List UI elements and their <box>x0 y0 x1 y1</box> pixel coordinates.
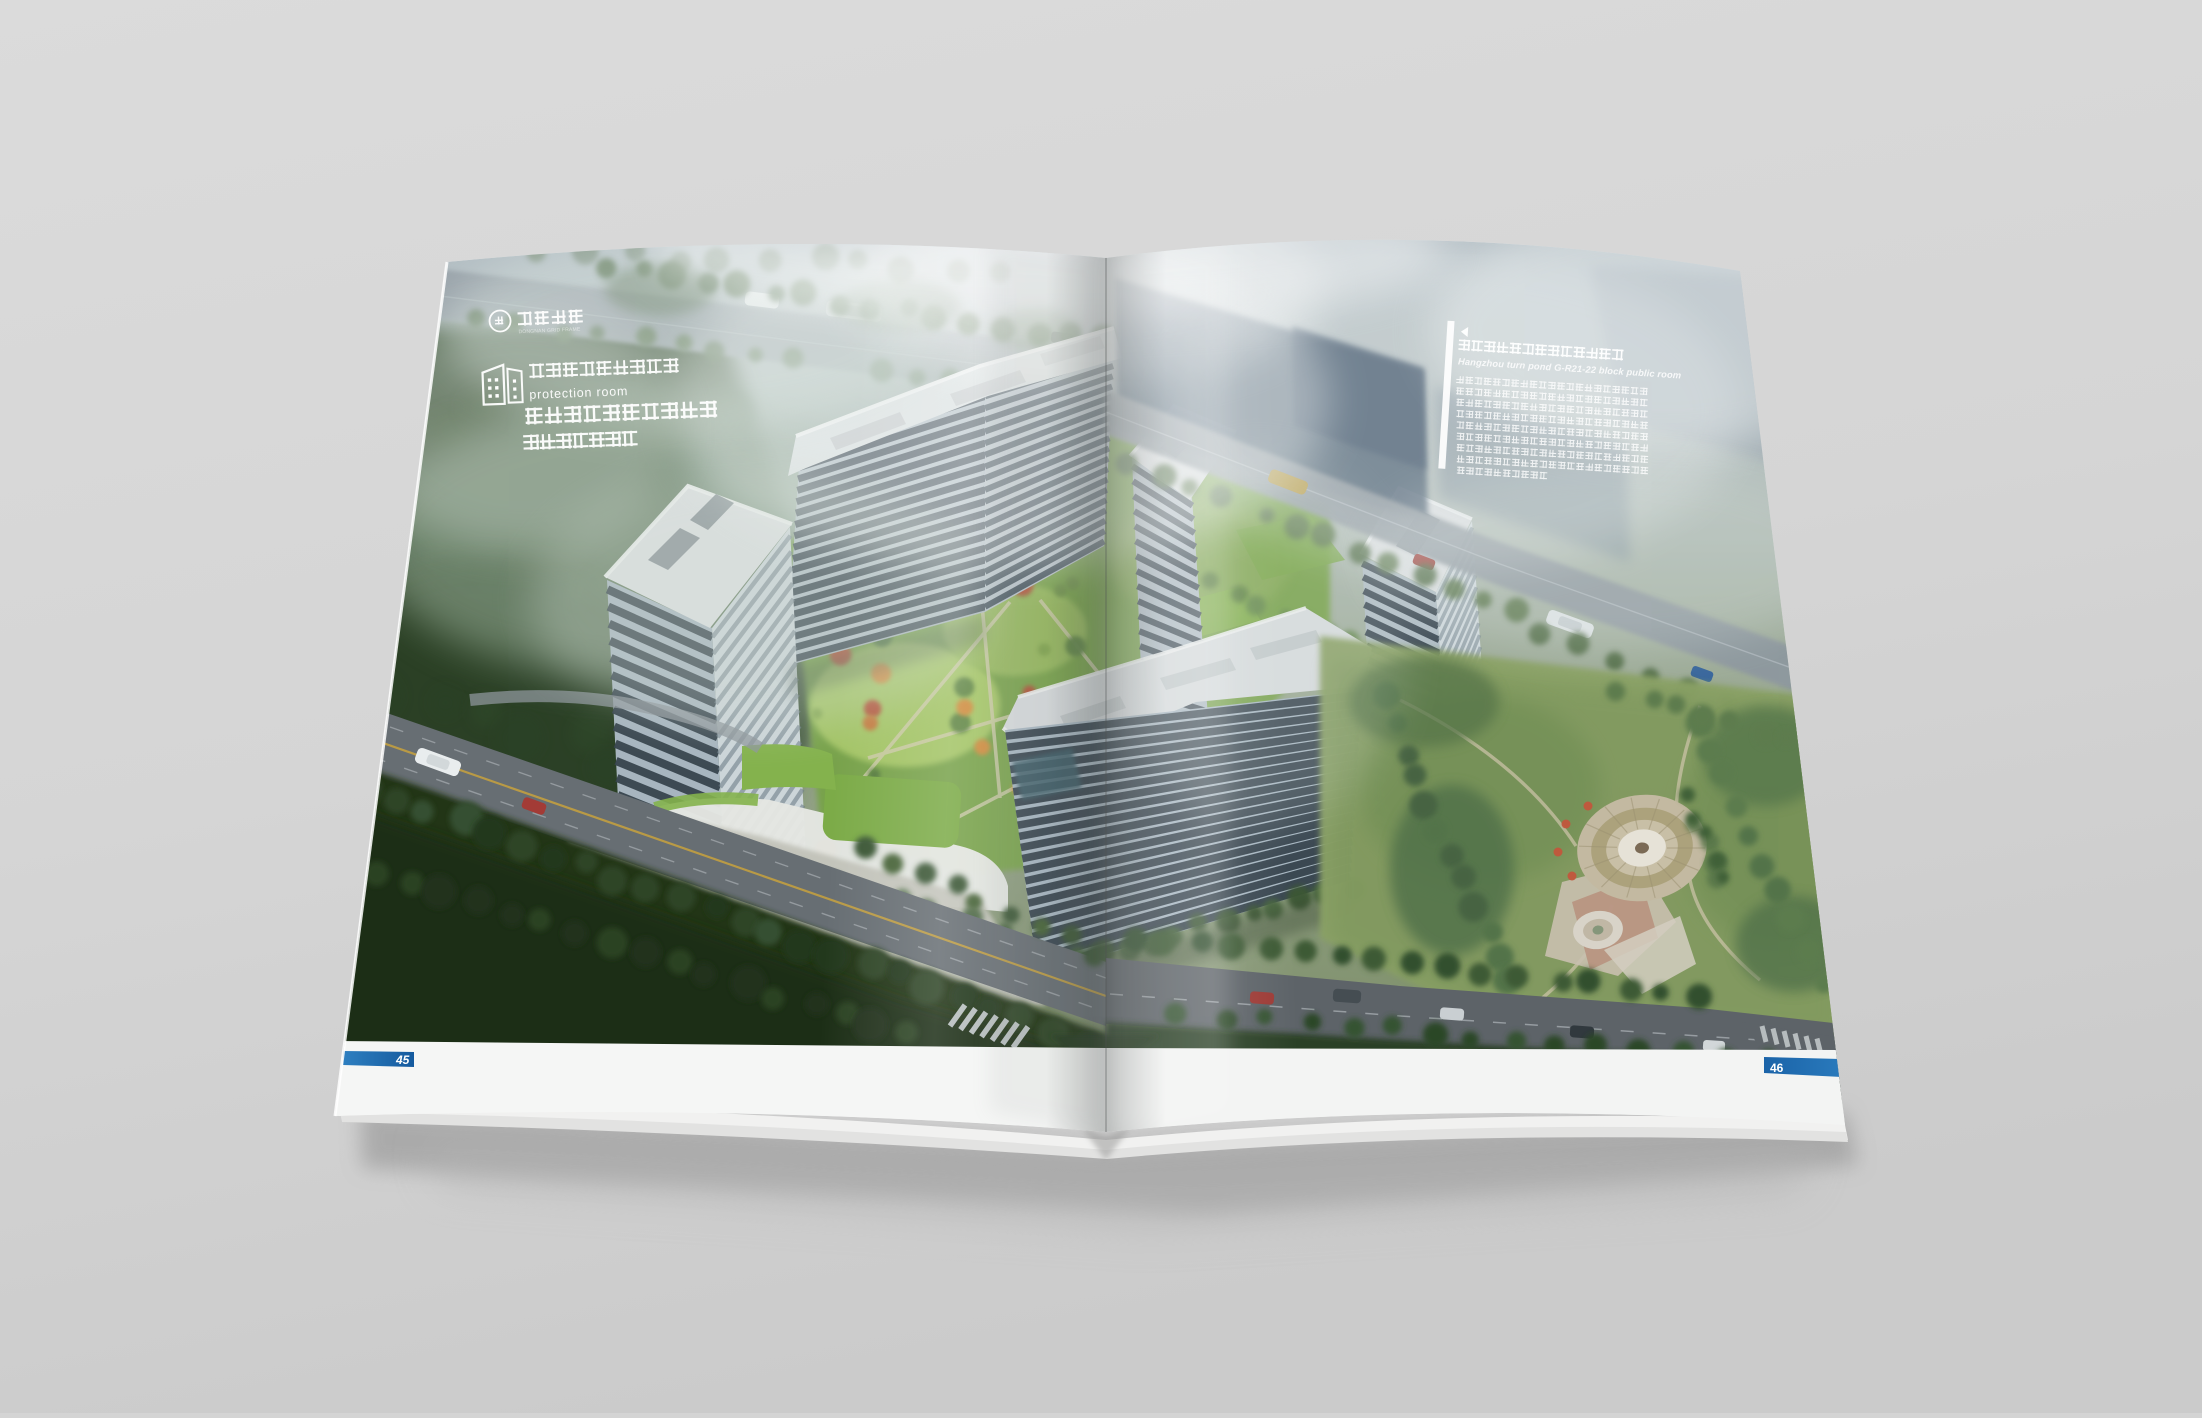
svg-text:46: 46 <box>1770 1061 1784 1075</box>
svg-text:45: 45 <box>395 1053 410 1067</box>
